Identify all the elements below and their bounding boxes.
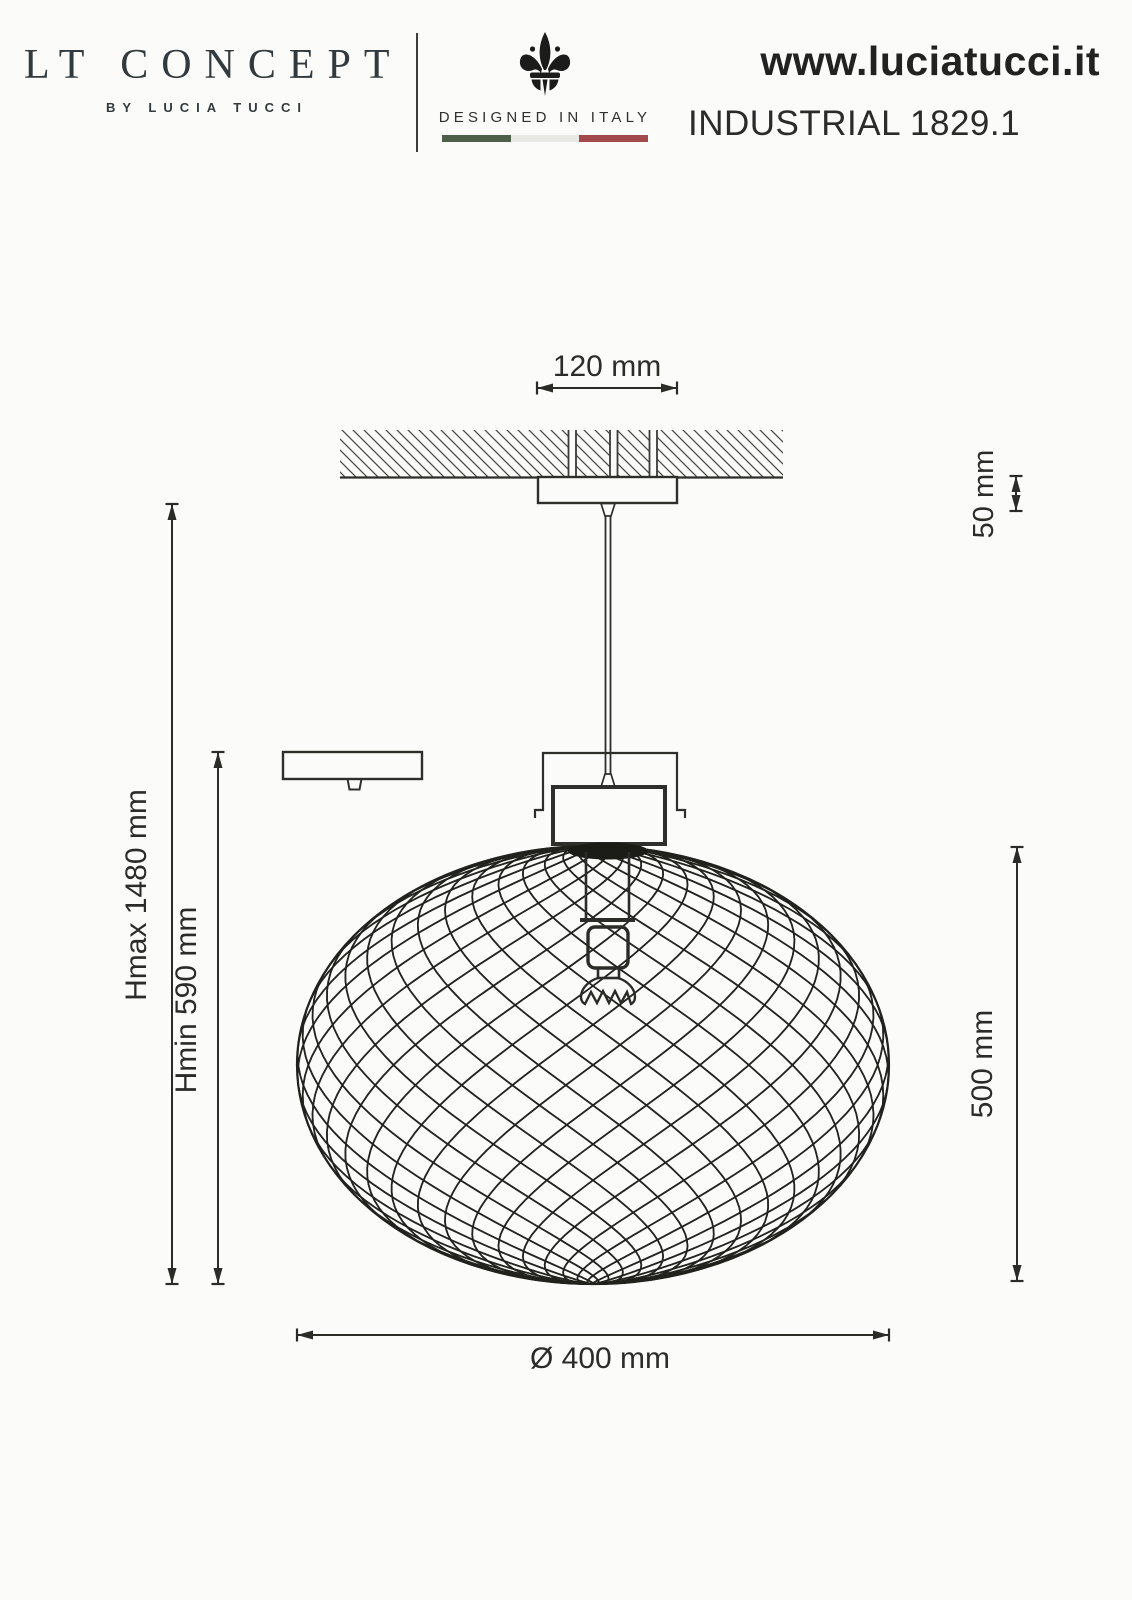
shade-top-hub [568, 843, 648, 860]
suspension-wire [601, 504, 615, 788]
dimension-lines [166, 382, 1024, 1342]
lamp-holder-box [553, 787, 665, 844]
bulb-socket [588, 927, 628, 968]
dim-canopy-height-label: 50 mm [968, 450, 1000, 539]
dim-canopy-width-label: 120 mm [553, 350, 661, 383]
dim-shade-diameter-label: Ø 400 mm [530, 1342, 670, 1375]
dim-height-min-label: Hmin 590 mm [170, 907, 203, 1094]
canopy-side-view [283, 752, 422, 790]
ceiling-hatch [340, 430, 783, 477]
canopy-front-view [538, 477, 677, 503]
technical-drawing: 120 mm 50 mm Hmax 1480 mm Hmin 590 mm 50… [0, 0, 1132, 1600]
dim-shade-height-label: 500 mm [966, 1010, 999, 1118]
spec-sheet-page: LT CONCEPT BY LUCIA TUCCI DESIGNED IN IT… [0, 0, 1132, 1600]
dim-height-max-label: Hmax 1480 mm [120, 789, 153, 1001]
shade-mesh [298, 846, 889, 1284]
